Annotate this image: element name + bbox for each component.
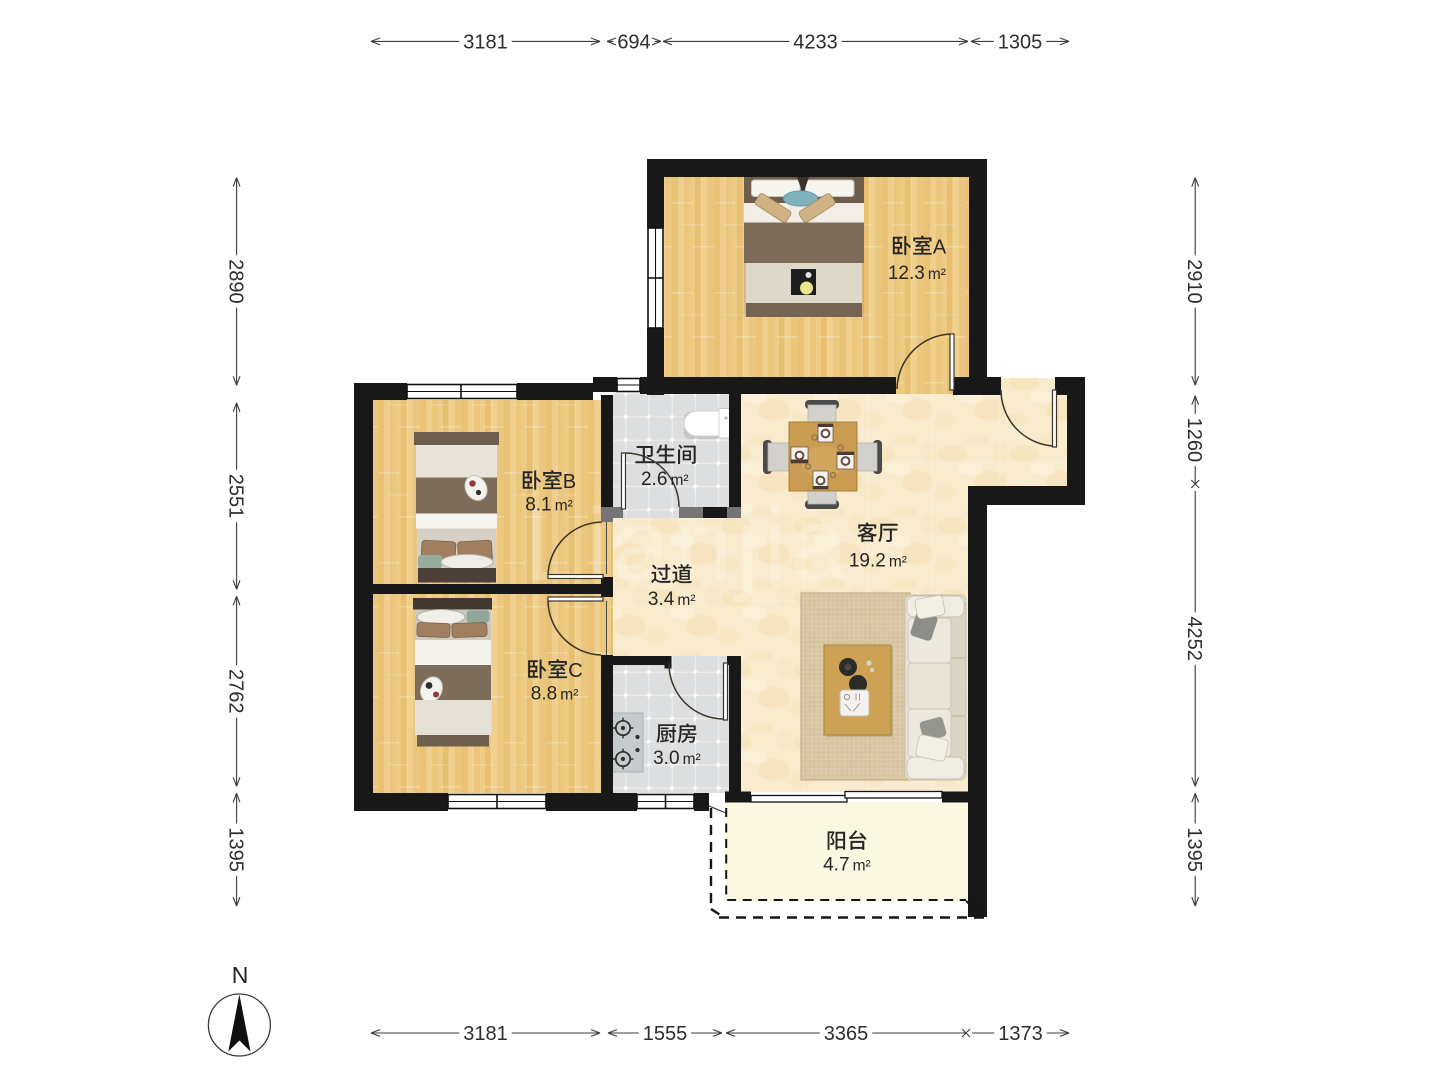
svg-text:4252: 4252 bbox=[1183, 616, 1205, 661]
svg-text:1305: 1305 bbox=[998, 32, 1043, 54]
svg-text:8.1 m²: 8.1 m² bbox=[525, 494, 573, 515]
svg-text:2762: 2762 bbox=[224, 669, 246, 714]
svg-text:1373: 1373 bbox=[998, 1023, 1043, 1045]
svg-text:1395: 1395 bbox=[1183, 827, 1205, 872]
svg-text:A: A bbox=[933, 237, 947, 259]
svg-text:2.6 m²: 2.6 m² bbox=[641, 469, 689, 490]
svg-text:2890: 2890 bbox=[224, 259, 246, 304]
svg-text:19.2 m²: 19.2 m² bbox=[849, 550, 907, 571]
svg-text:C: C bbox=[568, 660, 582, 682]
svg-text:1260: 1260 bbox=[1183, 418, 1205, 463]
svg-text:2551: 2551 bbox=[224, 474, 246, 519]
svg-text:N: N bbox=[232, 962, 249, 988]
svg-text:3.0 m²: 3.0 m² bbox=[653, 748, 701, 769]
svg-text:4.7 m²: 4.7 m² bbox=[823, 855, 871, 876]
svg-text:1395: 1395 bbox=[224, 827, 246, 872]
svg-text:694: 694 bbox=[617, 32, 650, 54]
svg-text:3181: 3181 bbox=[463, 32, 508, 54]
svg-text:1555: 1555 bbox=[643, 1023, 688, 1045]
svg-text:2910: 2910 bbox=[1183, 259, 1205, 304]
svg-text:12.3 m²: 12.3 m² bbox=[888, 263, 946, 284]
svg-text:3181: 3181 bbox=[463, 1023, 508, 1045]
svg-text:B: B bbox=[563, 471, 576, 493]
svg-text:4233: 4233 bbox=[793, 32, 838, 54]
svg-text:3365: 3365 bbox=[824, 1023, 869, 1045]
svg-text:3.4 m²: 3.4 m² bbox=[648, 589, 696, 610]
svg-text:8.8 m²: 8.8 m² bbox=[531, 684, 579, 705]
